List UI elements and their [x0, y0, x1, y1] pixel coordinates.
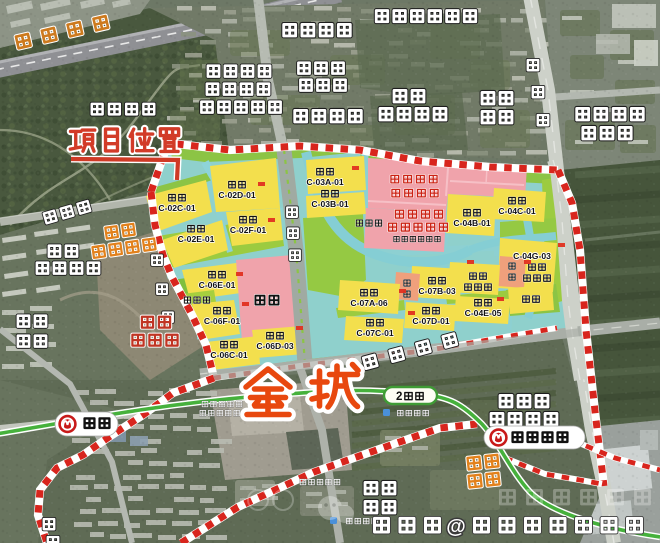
- svg-text:C-06C-01: C-06C-01: [210, 350, 247, 360]
- svg-text:C-02F-01: C-02F-01: [230, 225, 267, 235]
- svg-text:C-06E-01: C-06E-01: [199, 280, 236, 290]
- svg-text:@: @: [446, 516, 466, 538]
- svg-text:C-04E-05: C-04E-05: [465, 308, 502, 318]
- svg-text:C-03A-01: C-03A-01: [306, 177, 343, 187]
- svg-text:C-04G-03: C-04G-03: [513, 251, 551, 261]
- svg-text:C-06D-03: C-06D-03: [256, 341, 293, 351]
- svg-text:C-02D-01: C-02D-01: [218, 190, 255, 200]
- svg-text:C-07D-01: C-07D-01: [412, 316, 449, 326]
- svg-text:C-02C-01: C-02C-01: [158, 203, 195, 213]
- svg-text:C-07B-03: C-07B-03: [418, 286, 455, 296]
- svg-text:C-07A-06: C-07A-06: [350, 298, 387, 308]
- svg-text:C-06F-01: C-06F-01: [204, 316, 241, 326]
- svg-text:C-02E-01: C-02E-01: [178, 234, 215, 244]
- svg-text:2: 2: [396, 391, 402, 403]
- svg-text:C-07C-01: C-07C-01: [356, 328, 393, 338]
- svg-text:C-04C-01: C-04C-01: [498, 206, 535, 216]
- svg-text:C-03B-01: C-03B-01: [311, 199, 348, 209]
- svg-text:C-04B-01: C-04B-01: [453, 218, 490, 228]
